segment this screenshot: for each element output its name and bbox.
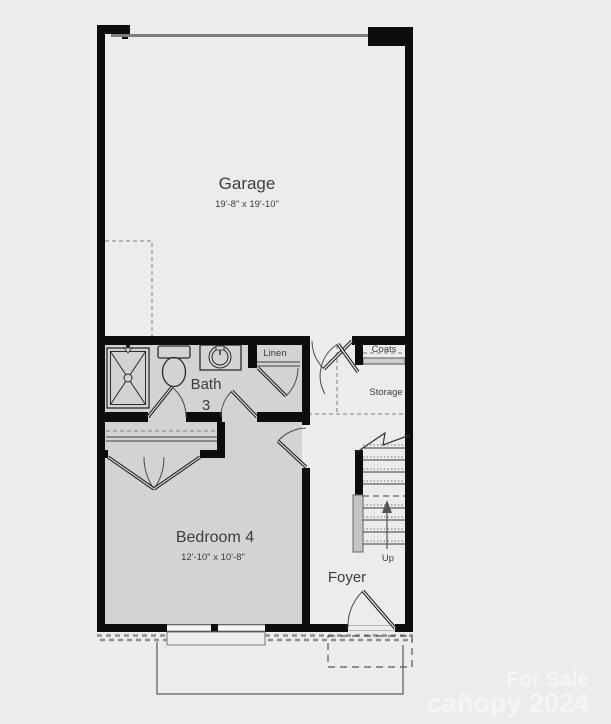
bedroom-label: Bedroom 4 — [176, 529, 254, 546]
wall-top-right-block — [368, 27, 413, 46]
wall-top-left-stub — [97, 25, 130, 34]
stair-stringer — [353, 495, 363, 552]
wall-bath-south-1 — [97, 412, 148, 422]
bath-label-line1: Bath — [191, 376, 222, 393]
wall-bath-south-3 — [257, 412, 302, 422]
wall-left — [97, 25, 105, 632]
garage-door-line — [111, 34, 368, 37]
floor-plan-drawing: Garage 19'-8" x 19'-10" Bath 3 Linen Coa… — [0, 0, 611, 724]
bedroom-dimensions: 12'-10" x 10'-8" — [181, 552, 245, 563]
wall-stair-west — [355, 450, 363, 495]
wall-coats-west — [355, 336, 363, 365]
floor-plan-page: Garage 19'-8" x 19'-10" Bath 3 Linen Coa… — [0, 0, 611, 724]
wall-bottom-middle — [265, 624, 348, 632]
bath-label-line2: 3 — [202, 397, 210, 414]
foyer-label: Foyer — [328, 569, 366, 586]
wall-closet-south-right — [200, 450, 225, 458]
wall-hall-west-lower — [302, 468, 310, 624]
wall-hall-west-upper — [302, 345, 310, 425]
wall-bottom-left — [97, 624, 167, 632]
wall-linen-west — [248, 336, 257, 368]
garage-label: Garage — [219, 174, 276, 193]
stairs-up-label: Up — [382, 553, 394, 564]
shower-icon — [107, 344, 149, 408]
storage-label: Storage — [369, 387, 402, 398]
coats-shelf-bar — [363, 358, 405, 364]
wall-closet-south-left — [97, 450, 108, 458]
garage-dimensions: 19'-8" x 19'-10" — [215, 199, 279, 210]
coats-label: Coats — [372, 344, 397, 355]
watermark-line2: cañopy 2024 — [427, 688, 589, 718]
sink-icon — [200, 345, 241, 370]
wall-garage-south — [97, 336, 310, 345]
wall-bottom-right — [395, 624, 413, 632]
linen-label: Linen — [263, 348, 286, 359]
